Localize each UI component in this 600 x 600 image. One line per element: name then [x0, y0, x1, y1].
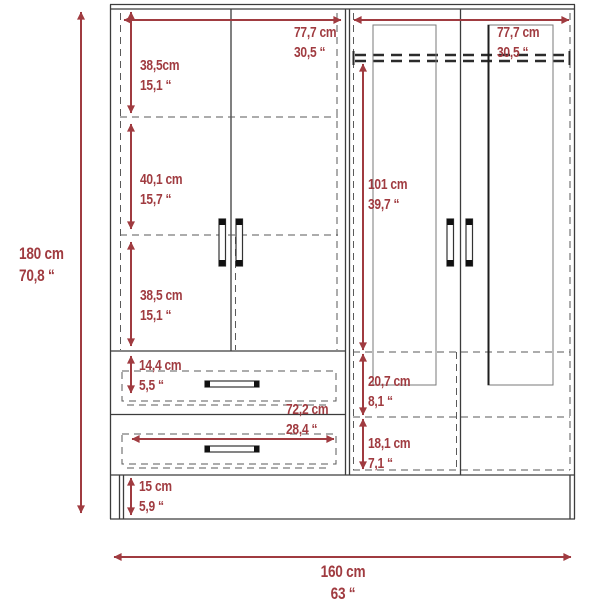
- label-overall-width-in: 63 “: [303, 583, 383, 600]
- label-right-upper-compartment-in: 8,1 “: [368, 392, 410, 412]
- label-drawer-front-height-in: 5,5 “: [139, 376, 181, 396]
- label-middle-shelf-height: 40,1 cm 15,7 “: [140, 170, 182, 209]
- label-right-section-width-in: 30,5 “: [497, 43, 539, 63]
- wardrobe-outline: [110, 5, 575, 520]
- label-hanging-section-height-cm: 101 cm: [368, 175, 407, 195]
- label-lower-shelf-height-in: 15,1 “: [140, 306, 182, 326]
- label-left-section-width-cm: 77,7 cm: [294, 23, 336, 43]
- label-hanging-section-height: 101 cm 39,7 “: [368, 175, 407, 214]
- label-upper-shelf-height: 38,5cm 15,1 “: [140, 56, 179, 95]
- label-overall-width-cm: 160 cm: [303, 561, 383, 583]
- label-right-lower-compartment-in: 7,1 “: [368, 454, 410, 474]
- right-mirror-panel: [488, 25, 553, 385]
- drawer-handles: [205, 381, 259, 452]
- label-upper-shelf-height-cm: 38,5cm: [140, 56, 179, 76]
- label-lower-shelf-height-cm: 38,5 cm: [140, 286, 182, 306]
- label-drawer-width: 72,2 cm 28,4 “: [286, 400, 328, 439]
- label-right-lower-compartment: 18,1 cm 7,1 “: [368, 434, 410, 473]
- label-overall-height-cm: 180 cm: [19, 243, 64, 265]
- label-overall-height-in: 70,8 “: [19, 265, 64, 287]
- label-drawer-front-height-cm: 14,4 cm: [139, 356, 181, 376]
- label-middle-shelf-height-in: 15,7 “: [140, 190, 182, 210]
- label-right-section-width-cm: 77,7 cm: [497, 23, 539, 43]
- label-overall-width: 160 cm 63 “: [303, 561, 383, 600]
- label-overall-height: 180 cm 70,8 “: [19, 243, 64, 287]
- label-base-height-in: 5,9 “: [139, 497, 172, 517]
- label-left-section-width-in: 30,5 “: [294, 43, 336, 63]
- label-base-height: 15 cm 5,9 “: [139, 477, 172, 516]
- label-lower-shelf-height: 38,5 cm 15,1 “: [140, 286, 182, 325]
- label-right-upper-compartment-cm: 20,7 cm: [368, 372, 410, 392]
- label-middle-shelf-height-cm: 40,1 cm: [140, 170, 182, 190]
- label-drawer-width-cm: 72,2 cm: [286, 400, 328, 420]
- label-left-section-width: 77,7 cm 30,5 “: [294, 23, 336, 62]
- label-right-upper-compartment: 20,7 cm 8,1 “: [368, 372, 410, 411]
- wardrobe-line-art: [0, 0, 600, 600]
- label-right-section-width: 77,7 cm 30,5 “: [497, 23, 539, 62]
- wardrobe-dimension-diagram: 180 cm 70,8 “ 160 cm 63 “ 77,7 cm 30,5 “…: [0, 0, 600, 600]
- label-drawer-front-height: 14,4 cm 5,5 “: [139, 356, 181, 395]
- label-hanging-section-height-in: 39,7 “: [368, 195, 407, 215]
- label-base-height-cm: 15 cm: [139, 477, 172, 497]
- door-handles: [205, 219, 473, 452]
- label-upper-shelf-height-in: 15,1 “: [140, 76, 179, 96]
- label-drawer-width-in: 28,4 “: [286, 420, 328, 440]
- right-doors-handle-pair: [447, 219, 473, 266]
- label-right-lower-compartment-cm: 18,1 cm: [368, 434, 410, 454]
